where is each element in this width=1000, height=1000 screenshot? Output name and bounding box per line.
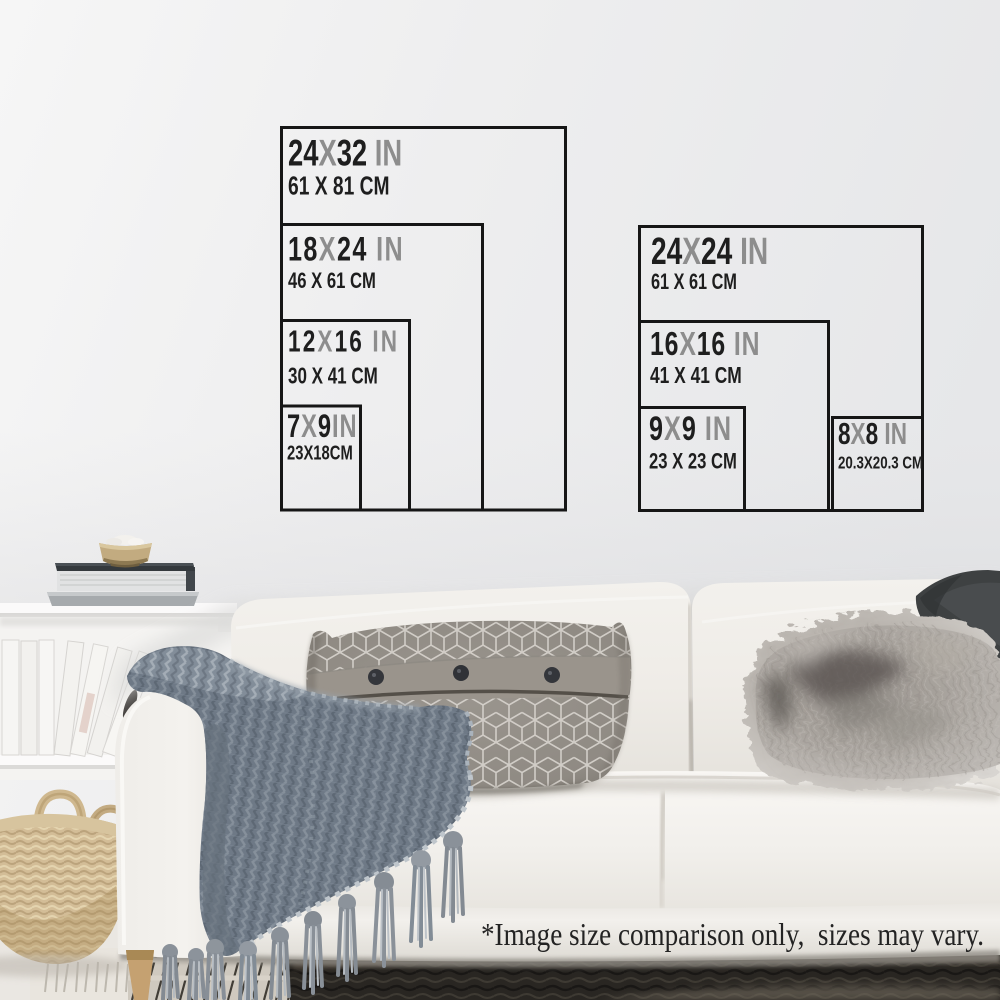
svg-text:8X8 IN: 8X8 IN	[838, 417, 907, 451]
svg-text:23X18CM: 23X18CM	[287, 441, 353, 464]
svg-text:41 X 41 CM: 41 X 41 CM	[650, 363, 742, 389]
svg-text:46 X 61 CM: 46 X 61 CM	[288, 269, 376, 294]
svg-text:7X9IN: 7X9IN	[287, 409, 358, 444]
svg-text:16X16 IN: 16X16 IN	[650, 325, 760, 363]
svg-text:20.3X20.3 CM: 20.3X20.3 CM	[838, 454, 923, 473]
svg-text:61 X 81 CM: 61 X 81 CM	[288, 171, 390, 201]
svg-text:18X24 IN: 18X24 IN	[288, 231, 404, 269]
svg-text:30 X 41 CM: 30 X 41 CM	[288, 364, 378, 389]
svg-text:23 X 23 CM: 23 X 23 CM	[649, 449, 737, 474]
svg-text:9X9 IN: 9X9 IN	[649, 410, 732, 448]
svg-text:61 X 61 CM: 61 X 61 CM	[651, 270, 737, 295]
svg-text:*Image size comparison only,: *Image size comparison only, sizes may v…	[481, 916, 984, 952]
svg-text:24X24 IN: 24X24 IN	[651, 231, 768, 273]
svg-text:24X32 IN: 24X32 IN	[288, 133, 402, 174]
svg-text:12X16 IN: 12X16 IN	[288, 324, 399, 358]
